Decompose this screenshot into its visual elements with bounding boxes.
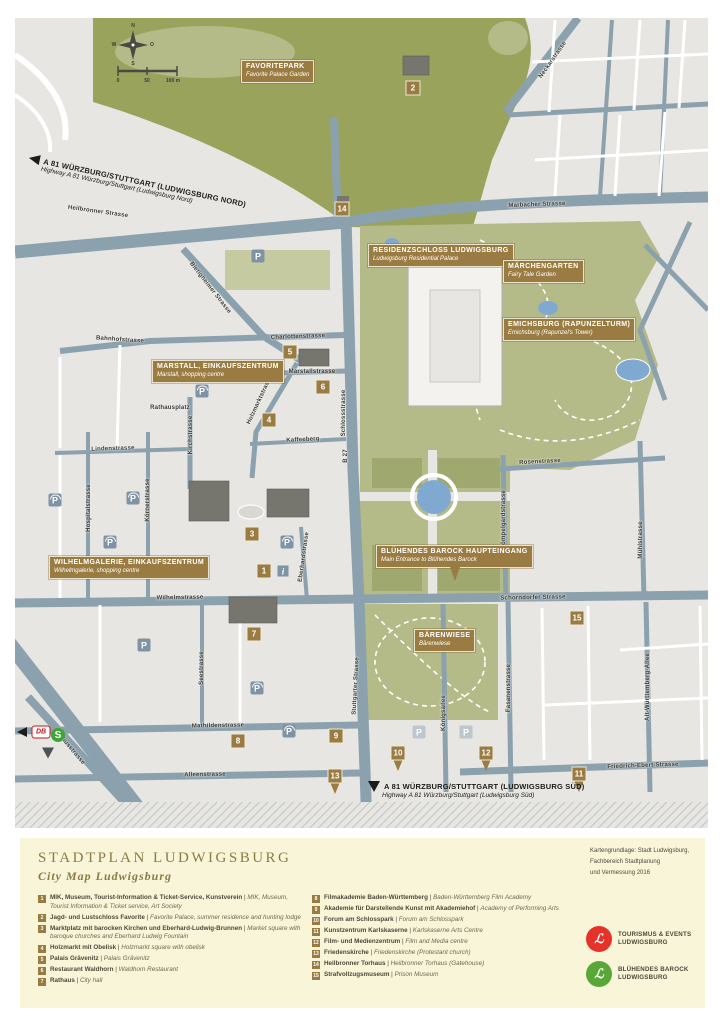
street-label-stuttgarter-strasse: Stuttgarter Strasse: [351, 657, 360, 715]
parking-icon: P: [49, 494, 62, 507]
parking-icon: P: [127, 492, 140, 505]
legend-item-name-de: Film- und Medienzentrum: [324, 938, 400, 945]
credits-line: und Vermessung 2016: [590, 868, 689, 879]
map-marker-14: 14: [335, 202, 350, 217]
legend-item-name-en: Baden-Württemberg Film Academy: [433, 894, 531, 901]
highway-name-en: Highway A 81 Würzburg/Stuttgart (Ludwigs…: [382, 792, 584, 799]
logo-text: BLÜHENDES BAROCKLUDWIGSBURG: [618, 966, 689, 983]
street-label-friedrich-ebert-strasse: Friedrich-Ebert-Strasse: [607, 762, 678, 770]
parking-roof-arc: [105, 537, 116, 542]
parking-icon: P: [196, 385, 209, 398]
poi-box-residenzschloss: RESIDENZSCHLOSS LUDWIGSBURGLudwigsburg R…: [368, 244, 514, 267]
poi-name-en: Ludwigsburg Residential Palace: [373, 256, 509, 264]
parking-roof-arc: [252, 683, 263, 688]
street-label-rosenstrasse: Rosenstrasse: [519, 458, 561, 466]
street-label-heilbronner-strasse: Heilbronner Strasse: [67, 205, 128, 219]
street-label-rathausplatz: Rathausplatz: [150, 405, 190, 411]
parking-letter: P: [463, 728, 469, 739]
poi-box-maerchengarten: MÄRCHENGARTENFairy Tale Garden: [503, 260, 584, 283]
legend-item-name-de: Rathaus: [50, 977, 75, 984]
parking-icon: P: [283, 725, 296, 738]
map-marker-10: 10: [391, 746, 406, 761]
street-label-wilhelmstrasse: Wilhelmstrasse: [157, 595, 204, 602]
street-label-m-mpelgardstrasse: Mömpelgardstrasse: [501, 490, 507, 550]
highway-label-row: A 81 WÜRZBURG/STUTTGART (LUDWIGSBURG SÜD…: [368, 781, 584, 792]
logo-sunburst-icon: ℒ: [586, 961, 612, 987]
legend-item-name-de: Palais Grävenitz: [50, 955, 99, 962]
legend-item-text: Holzmarkt mit Obelisk | Holzmarkt square…: [50, 944, 205, 953]
legend-item-text: Jagd- und Lustschloss Favorite | Favorit…: [50, 914, 301, 923]
legend-item-name-de: Holzmarkt mit Obelisk: [50, 944, 116, 951]
highway-arrow-left-icon: [28, 153, 41, 165]
legend-item-3: 3Marktplatz mit barocken Kirchen und Ebe…: [38, 925, 306, 942]
parking-roof-arc: [128, 493, 139, 498]
legend-subtitle: City Map Ludwigsburg: [38, 869, 172, 884]
legend-item-number: 8: [312, 895, 320, 903]
legend-item-11: 11Kunstzentrum Karlskaserne | Karlskaser…: [312, 927, 580, 936]
city-map-page: Heilbronner StrasseMarbacher StrasseNeck…: [0, 0, 723, 1024]
poi-name-en: Fairy Tale Garden: [508, 272, 579, 280]
poi-name: EMICHSBURG (RAPUNZELTURM): [508, 321, 630, 330]
legend-item-12: 12Film- und Medienzentrum | Film and Med…: [312, 938, 580, 947]
logo-text: TOURISMUS & EVENTSLUDWIGSBURG: [618, 931, 691, 948]
poi-name-en: Wilhelmgalerie, shopping centre: [54, 568, 204, 576]
street-label-hospitalstrasse: Hospitalstrasse: [86, 484, 92, 532]
legend-item-number: 5: [38, 956, 46, 964]
highway-label-row: A 81 WÜRZBURG/STUTTGART (LUDWIGSBURG NOR…: [28, 153, 247, 209]
map-marker-4: 4: [262, 413, 277, 428]
map-marker-13: 13: [328, 769, 343, 784]
marker-pin: [481, 759, 491, 771]
parking-icon: P: [281, 536, 294, 549]
db-railway-icon: DB: [32, 726, 51, 739]
street-label-marbacher-strasse: Marbacher Strasse: [508, 201, 565, 209]
station-arrow-left-icon: [17, 727, 27, 737]
poi-name: BLÜHENDES BAROCK HAUPTEINGANG: [381, 548, 528, 557]
sbahn-icon: S: [51, 728, 65, 742]
legend-item-text: Restaurant Waldhorn | Waldhorn Restauran…: [50, 966, 178, 975]
legend-item-number: 1: [38, 895, 46, 903]
legend-item-7: 7Rathaus | City hall: [38, 977, 306, 986]
scale-label: 50: [144, 78, 150, 84]
legend-item-name-de: Restaurant Waldhorn: [50, 966, 113, 973]
legend-item-number: 12: [312, 939, 320, 947]
street-label-charlottenstrasse: Charlottenstrasse: [271, 333, 326, 341]
legend-item-15: 15Strafvollzugsmuseum | Prison Museum: [312, 971, 580, 980]
parking-roof-arc: [197, 386, 208, 391]
parking-roof-arc: [284, 726, 295, 731]
map-marker-7: 7: [247, 627, 262, 642]
legend-item-number: 3: [38, 925, 46, 933]
legend-panel: STADTPLAN LUDWIGSBURG City Map Ludwigsbu…: [20, 838, 705, 1008]
legend-item-text: Film- und Medienzentrum | Film and Media…: [324, 938, 468, 947]
legend-item-9: 9Akademie für Darstellende Kunst mit Aka…: [312, 905, 580, 914]
street-label-k-nigsallee: Königsallee: [441, 695, 447, 731]
street-label-k-rnerstrasse: Körnerstrasse: [145, 478, 151, 521]
street-label-bietigheimer-strasse: Bietigheimer Strasse: [188, 261, 232, 315]
poi-box-marstall: MARSTALL, EINKAUFSZENTRUMMarstall, shopp…: [152, 360, 284, 383]
scale-label: 100 m: [166, 78, 180, 84]
legend-item-1: 1MIK, Museum, Tourist-Information & Tick…: [38, 894, 306, 911]
map-marker-12: 12: [479, 746, 494, 761]
legend-item-14: 14Heilbronner Torhaus | Heilbronner Torh…: [312, 960, 580, 969]
logo-text-line1: TOURISMUS & EVENTS: [618, 931, 691, 939]
legend-item-name-en: Favorite Palace, summer residence and hu…: [150, 914, 301, 921]
legend-item-number: 4: [38, 945, 46, 953]
scale-label: 0: [117, 78, 120, 84]
logo-text-line1: BLÜHENDES BAROCK: [618, 966, 689, 974]
logo-block: ℒTOURISMUS & EVENTSLUDWIGSBURGℒBLÜHENDES…: [586, 926, 691, 996]
logo-text-line2: LUDWIGSBURG: [618, 939, 691, 947]
legend-item-name-en: Academy of Performing Arts: [480, 905, 559, 912]
legend-item-name-en: City hall: [80, 977, 102, 984]
legend-item-name-en: Holzmarkt square with obelisk: [121, 944, 205, 951]
highway-label-north: A 81 WÜRZBURG/STUTTGART (LUDWIGSBURG NOR…: [26, 153, 247, 216]
street-label-lindenstrasse: Lindenstrasse: [91, 445, 134, 453]
map-marker-5: 5: [283, 345, 298, 360]
compass-letter-w: W: [112, 42, 117, 48]
legend-item-name-en: Film and Media centre: [405, 938, 467, 945]
map-marker-6: 6: [316, 380, 331, 395]
legend-item-10: 10Forum am Schlosspark | Forum am Schlos…: [312, 916, 580, 925]
map-marker-9: 9: [329, 729, 344, 744]
legend-item-text: Friedenskirche | Friedenskirche (Protest…: [324, 949, 471, 958]
highway-label-south: A 81 WÜRZBURG/STUTTGART (LUDWIGSBURG SÜD…: [368, 781, 584, 799]
legend-item-number: 15: [312, 972, 320, 980]
legend-item-name-de: Akademie für Darstellende Kunst mit Akad…: [324, 905, 475, 912]
street-label-seestrasse: Seestrasse: [199, 651, 205, 685]
tourist-info-icon: i: [278, 566, 289, 577]
legend-item-text: Heilbronner Torhaus | Heilbronner Torhau…: [324, 960, 484, 969]
legend-item-text: Kunstzentrum Karlskaserne | Karlskaserne…: [324, 927, 483, 936]
map-marker-11: 11: [572, 767, 587, 782]
legend-item-name-en: Heilbronner Torhaus (Gatehouse): [391, 960, 485, 967]
poi-name: WILHELMGALERIE, EINKAUFSZENTRUM: [54, 559, 204, 568]
map-marker-8: 8: [231, 734, 246, 749]
credits-line: Fachbereich Stadtplanung: [590, 857, 689, 868]
parking-icon: P: [138, 639, 151, 652]
street-label-eberhardstrasse: Eberhardstrasse: [298, 532, 311, 583]
legend-item-13: 13Friedenskirche | Friedenskirche (Prote…: [312, 949, 580, 958]
legend-item-name-en: Forum am Schlosspark: [399, 916, 464, 923]
legend-item-number: 14: [312, 961, 320, 969]
map-canvas: Heilbronner StrasseMarbacher StrasseNeck…: [15, 18, 708, 828]
poi-box-bluehendes-barock-haupteingang: BLÜHENDES BAROCK HAUPTEINGANGMain Entran…: [376, 545, 533, 568]
parking-icon: P: [251, 682, 264, 695]
logo-sunburst-icon: ℒ: [586, 926, 612, 952]
poi-name-en: Bärenwiese: [419, 641, 470, 649]
legend-item-name-de: Forum am Schlosspark: [324, 916, 394, 923]
map-marker-2: 2: [406, 81, 421, 96]
parking-icon: P: [460, 726, 473, 739]
highway-arrow-down-icon: [368, 781, 380, 792]
legend-item-name-en: Karlskaserne Arts Centre: [413, 927, 483, 934]
street-label-neckarstrasse: Neckarstrasse: [538, 40, 568, 79]
legend-item-number: 2: [38, 914, 46, 922]
poi-name-en: Main Entrance to Blühendes Barock: [381, 557, 528, 565]
street-label-schorndorfer-strasse: Schorndorfer Strasse: [500, 594, 565, 601]
legend-item-name-en: Friedenskirche (Protestant church): [374, 949, 471, 956]
parking-icon: P: [104, 536, 117, 549]
parking-letter: P: [141, 641, 147, 652]
poi-name: BÄRENWIESE: [419, 632, 470, 641]
marker-pin: [393, 759, 403, 771]
legend-item-name-en: Waldhorn Restaurant: [119, 966, 178, 973]
highway-name: A 81 WÜRZBURG/STUTTGART (LUDWIGSBURG SÜD…: [384, 782, 584, 791]
poi-box-emichsburg: EMICHSBURG (RAPUNZELTURM)Emichsburg (Rap…: [503, 318, 635, 341]
legend-item-8: 8Filmakademie Baden-Württemberg | Baden-…: [312, 894, 580, 903]
map-credits: Kartengrundlage: Stadt Ludwigsburg, Fach…: [590, 846, 689, 878]
street-label-mathildenstrasse: Mathildenstrasse: [192, 723, 244, 730]
parking-letter: P: [416, 728, 422, 739]
marker-pin: [330, 782, 340, 794]
street-label-alleenstrasse: Alleenstrasse: [184, 772, 226, 779]
compass-letter-s: S: [131, 61, 134, 67]
street-label-kirchstrasse: Kirchstrasse: [188, 416, 194, 455]
map-overlay-layer: Heilbronner StrasseMarbacher StrasseNeck…: [15, 18, 708, 828]
legend-item-name-de: Filmakademie Baden-Württemberg: [324, 894, 428, 901]
street-label-marstallstrasse: Marstallstrasse: [289, 369, 336, 375]
map-marker-15: 15: [570, 611, 585, 626]
legend-item-text: MIK, Museum, Tourist-Information & Ticke…: [50, 894, 306, 911]
legend-item-name-de: Marktplatz mit barocken Kirchen und Eber…: [50, 925, 242, 932]
legend-item-5: 5Palais Grävenitz | Palais Grävenitz: [38, 955, 306, 964]
compass-letter-n: N: [131, 23, 135, 29]
poi-box-favoritepark: FAVORITEPARKFavorite Palace Garden: [241, 60, 314, 83]
street-label-fasanenstrasse: Fasanenstrasse: [506, 664, 512, 712]
legend-item-number: 9: [312, 906, 320, 914]
street-label-schlossstrasse: Schlossstrasse: [341, 390, 347, 437]
legend-column-right: 8Filmakademie Baden-Württemberg | Baden-…: [312, 894, 580, 982]
map-marker-1: 1: [257, 564, 272, 579]
poi-box-baerenwiese: BÄRENWIESEBärenwiese: [414, 629, 475, 652]
station-arrow-down-icon: [42, 748, 54, 759]
poi-name: MÄRCHENGARTEN: [508, 263, 579, 272]
poi-name-en: Favorite Palace Garden: [246, 72, 309, 80]
poi-name-en: Marstall, shopping centre: [157, 372, 279, 380]
legend-item-6: 6Restaurant Waldhorn | Waldhorn Restaura…: [38, 966, 306, 975]
street-label-kaffeeberg: Kaffeeberg: [286, 436, 320, 444]
legend-item-name-de: Jagd- und Lustschloss Favorite: [50, 914, 145, 921]
legend-item-name-de: Friedenskirche: [324, 949, 369, 956]
legend-item-text: Strafvollzugsmuseum | Prison Museum: [324, 971, 438, 980]
legend-item-text: Marktplatz mit barocken Kirchen und Eber…: [50, 925, 306, 942]
street-label-m-hlstrasse: Mühlstrasse: [638, 521, 644, 558]
legend-item-text: Filmakademie Baden-Württemberg | Baden-W…: [324, 894, 531, 903]
poi-name: FAVORITEPARK: [246, 63, 309, 72]
parking-icon: P: [413, 726, 426, 739]
legend-item-2: 2Jagd- und Lustschloss Favorite | Favori…: [38, 914, 306, 923]
parking-icon: P: [252, 250, 265, 263]
legend-item-number: 13: [312, 950, 320, 958]
legend-item-name-en: Prison Museum: [395, 971, 439, 978]
legend-item-name-en: Palais Grävenitz: [104, 955, 150, 962]
parking-roof-arc: [282, 537, 293, 542]
parking-letter: P: [255, 252, 261, 263]
legend-item-4: 4Holzmarkt mit Obelisk | Holzmarkt squar…: [38, 944, 306, 953]
logo-text-line2: LUDWIGSBURG: [618, 974, 689, 982]
poi-name: RESIDENZSCHLOSS LUDWIGSBURG: [373, 247, 509, 256]
legend-item-number: 6: [38, 967, 46, 975]
poi-name: MARSTALL, EINKAUFSZENTRUM: [157, 363, 279, 372]
legend-item-name-de: MIK, Museum, Tourist-Information & Ticke…: [50, 894, 242, 901]
street-label-bahnhofstrasse: Bahnhofstrasse: [96, 335, 144, 344]
poi-pointer: [450, 567, 460, 581]
legend-item-number: 10: [312, 917, 320, 925]
street-label-alt-w-rttemberg-allee: Alt-Württemberg-Allee: [645, 653, 651, 721]
legend-item-name-de: Kunstzentrum Karlskaserne: [324, 927, 408, 934]
credits-line: Kartengrundlage: Stadt Ludwigsburg,: [590, 846, 689, 857]
legend-item-text: Akademie für Darstellende Kunst mit Akad…: [324, 905, 559, 914]
legend-item-text: Palais Grävenitz | Palais Grävenitz: [50, 955, 150, 964]
legend-item-number: 7: [38, 978, 46, 986]
legend-column-left: 1MIK, Museum, Tourist-Information & Tick…: [38, 894, 306, 988]
legend-item-name-de: Strafvollzugsmuseum: [324, 971, 389, 978]
map-marker-3: 3: [245, 527, 260, 542]
logo-tourismus-events: ℒTOURISMUS & EVENTSLUDWIGSBURG: [586, 926, 691, 952]
compass-letter-e: O: [150, 42, 154, 48]
poi-name-en: Emichsburg (Rapunzel's Tower): [508, 330, 630, 338]
poi-box-wilhelmgalerie: WILHELMGALERIE, EINKAUFSZENTRUMWilhelmga…: [49, 556, 209, 579]
legend-item-text: Rathaus | City hall: [50, 977, 102, 986]
legend-item-text: Forum am Schlosspark | Forum am Schlossp…: [324, 916, 464, 925]
legend-item-number: 11: [312, 928, 320, 936]
highway-name: A 81 WÜRZBURG/STUTTGART (LUDWIGSBURG NOR…: [43, 157, 247, 209]
street-label-b-27: B 27: [343, 449, 349, 462]
parking-roof-arc: [50, 495, 61, 500]
legend-title: STADTPLAN LUDWIGSBURG: [38, 850, 291, 867]
legend-item-name-de: Heilbronner Torhaus: [324, 960, 385, 967]
logo-bl-hendes-barock: ℒBLÜHENDES BAROCKLUDWIGSBURG: [586, 961, 691, 987]
